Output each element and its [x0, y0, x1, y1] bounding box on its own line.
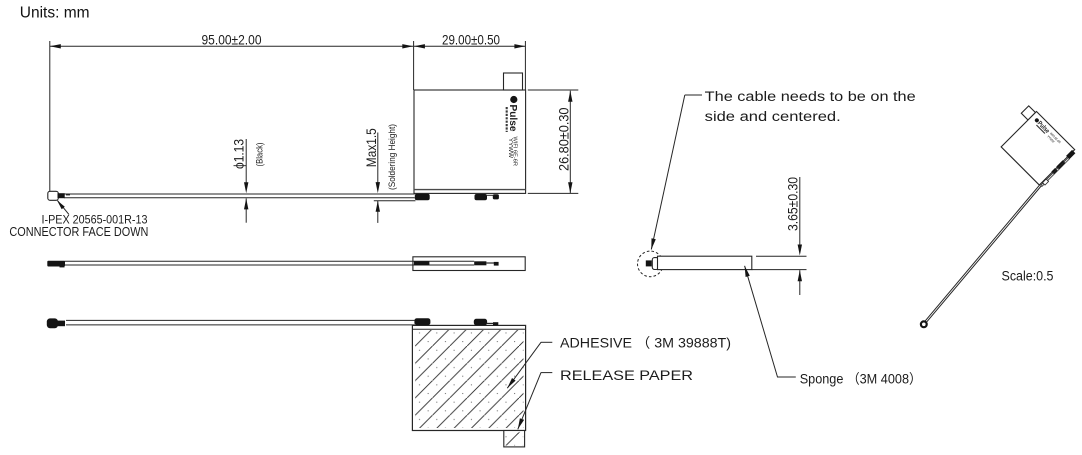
svg-text:CONNECTOR FACE DOWN: CONNECTOR FACE DOWN: [9, 225, 148, 239]
svg-text:RELEASE PAPER: RELEASE PAPER: [560, 368, 693, 383]
svg-text:Pulse: Pulse: [507, 105, 519, 132]
svg-text:(Soldering Height): (Soldering Height): [387, 124, 398, 190]
svg-text:Max1.5: Max1.5: [363, 128, 379, 167]
svg-text:Scale:0.5: Scale:0.5: [1002, 269, 1054, 284]
svg-text:side and centered.: side and centered.: [705, 109, 841, 124]
svg-text:ADHESIVE （ 3M 39888T): ADHESIVE （ 3M 39888T): [560, 335, 731, 350]
svg-text:(Black): (Black): [254, 143, 264, 167]
svg-text:Units: mm: Units: mm: [20, 5, 90, 22]
svg-text:Sponge （3M 4008）: Sponge （3M 4008）: [800, 371, 922, 386]
svg-text:The cable needs to be on the: The cable needs to be on the: [705, 89, 916, 104]
svg-text:3.65±0.30: 3.65±0.30: [784, 177, 800, 231]
svg-text:95.00±2.00: 95.00±2.00: [202, 31, 262, 47]
svg-text:29.00±0.50: 29.00±0.50: [442, 31, 500, 47]
svg-text:26.80±0.30: 26.80±0.30: [555, 107, 571, 171]
svg-text:YYWW: YYWW: [507, 138, 513, 158]
svg-text:ϕ1.13: ϕ1.13: [230, 139, 246, 169]
